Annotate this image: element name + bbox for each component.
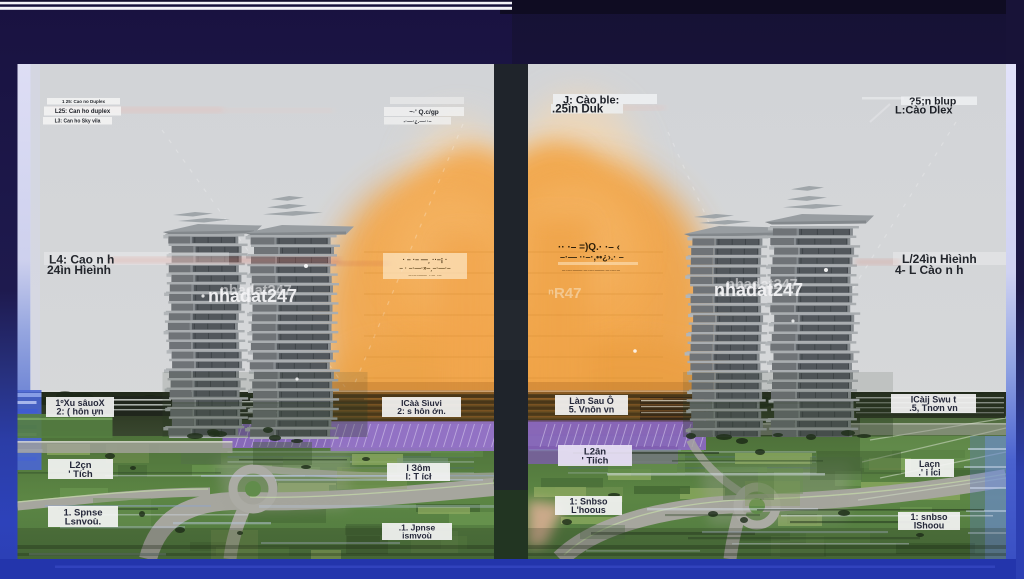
svg-text:L3: Can ho Sky vila: L3: Can ho Sky vila — [55, 119, 101, 125]
svg-text:– · –·—·»–¸–·—·–: – · –·—·»–¸–·—·– — [399, 265, 451, 272]
svg-text:· – ·– —¸ ··–¡ ·: · – ·– —¸ ··–¡ · — [403, 257, 448, 264]
svg-text:IShoou: IShoou — [914, 521, 945, 531]
svg-text:ismvoù: ismvoù — [402, 531, 432, 541]
svg-text:L:Cào Dlex: L:Cào Dlex — [895, 105, 953, 117]
svg-text:L25: Can ho duplex: L25: Can ho duplex — [55, 109, 111, 115]
svg-text:4- L Cào n h: 4- L Cào n h — [895, 263, 963, 277]
svg-text:.5, Tnơn vn: .5, Tnơn vn — [909, 403, 957, 413]
svg-text:L'hoous: L'hoous — [571, 505, 606, 515]
svg-text:1 25: Cao no Duplex: 1 25: Cao no Duplex — [62, 99, 106, 104]
svg-text:~·' Q.c/gp: ~·' Q.c/gp — [409, 109, 439, 116]
svg-text:nhadat247: nhadat247 — [220, 283, 292, 299]
svg-text:ⁿR47: ⁿR47 — [548, 285, 581, 302]
svg-text:–·–·—– ··– ·–: –·–·—– ··– ·– — [408, 273, 442, 279]
svg-text:2: ( hôn ựn: 2: ( hôn ựn — [56, 407, 103, 417]
svg-text:.25ìn Duk: .25ìn Duk — [552, 104, 604, 116]
svg-text:I: T ícł: I: T ícł — [405, 472, 432, 482]
svg-text:Lsnvoù.: Lsnvoù. — [65, 517, 101, 528]
svg-text:nhadat247: nhadat247 — [726, 277, 798, 293]
svg-text:' Tích: ' Tích — [68, 469, 93, 480]
svg-text:24ìn Hìeình: 24ìn Hìeình — [47, 263, 111, 277]
svg-text:–·–·—–·–·–·—–·–·–·–: –·–·—–·–·–·—–·–·–·– — [562, 268, 621, 274]
svg-text:-·—·¿.—··–: -·—·¿.—··– — [403, 119, 431, 125]
svg-text:2: s hôn ớn.: 2: s hôn ớn. — [397, 406, 446, 416]
svg-text:' Tiích: ' Tiích — [582, 456, 609, 467]
svg-text:–·— ··–·,••¿›.· –: –·— ··–·,••¿›.· – — [560, 252, 624, 262]
svg-text:.' i ici: .' i ici — [918, 468, 940, 478]
svg-text:5. Vnôn vn: 5. Vnôn vn — [569, 405, 615, 415]
